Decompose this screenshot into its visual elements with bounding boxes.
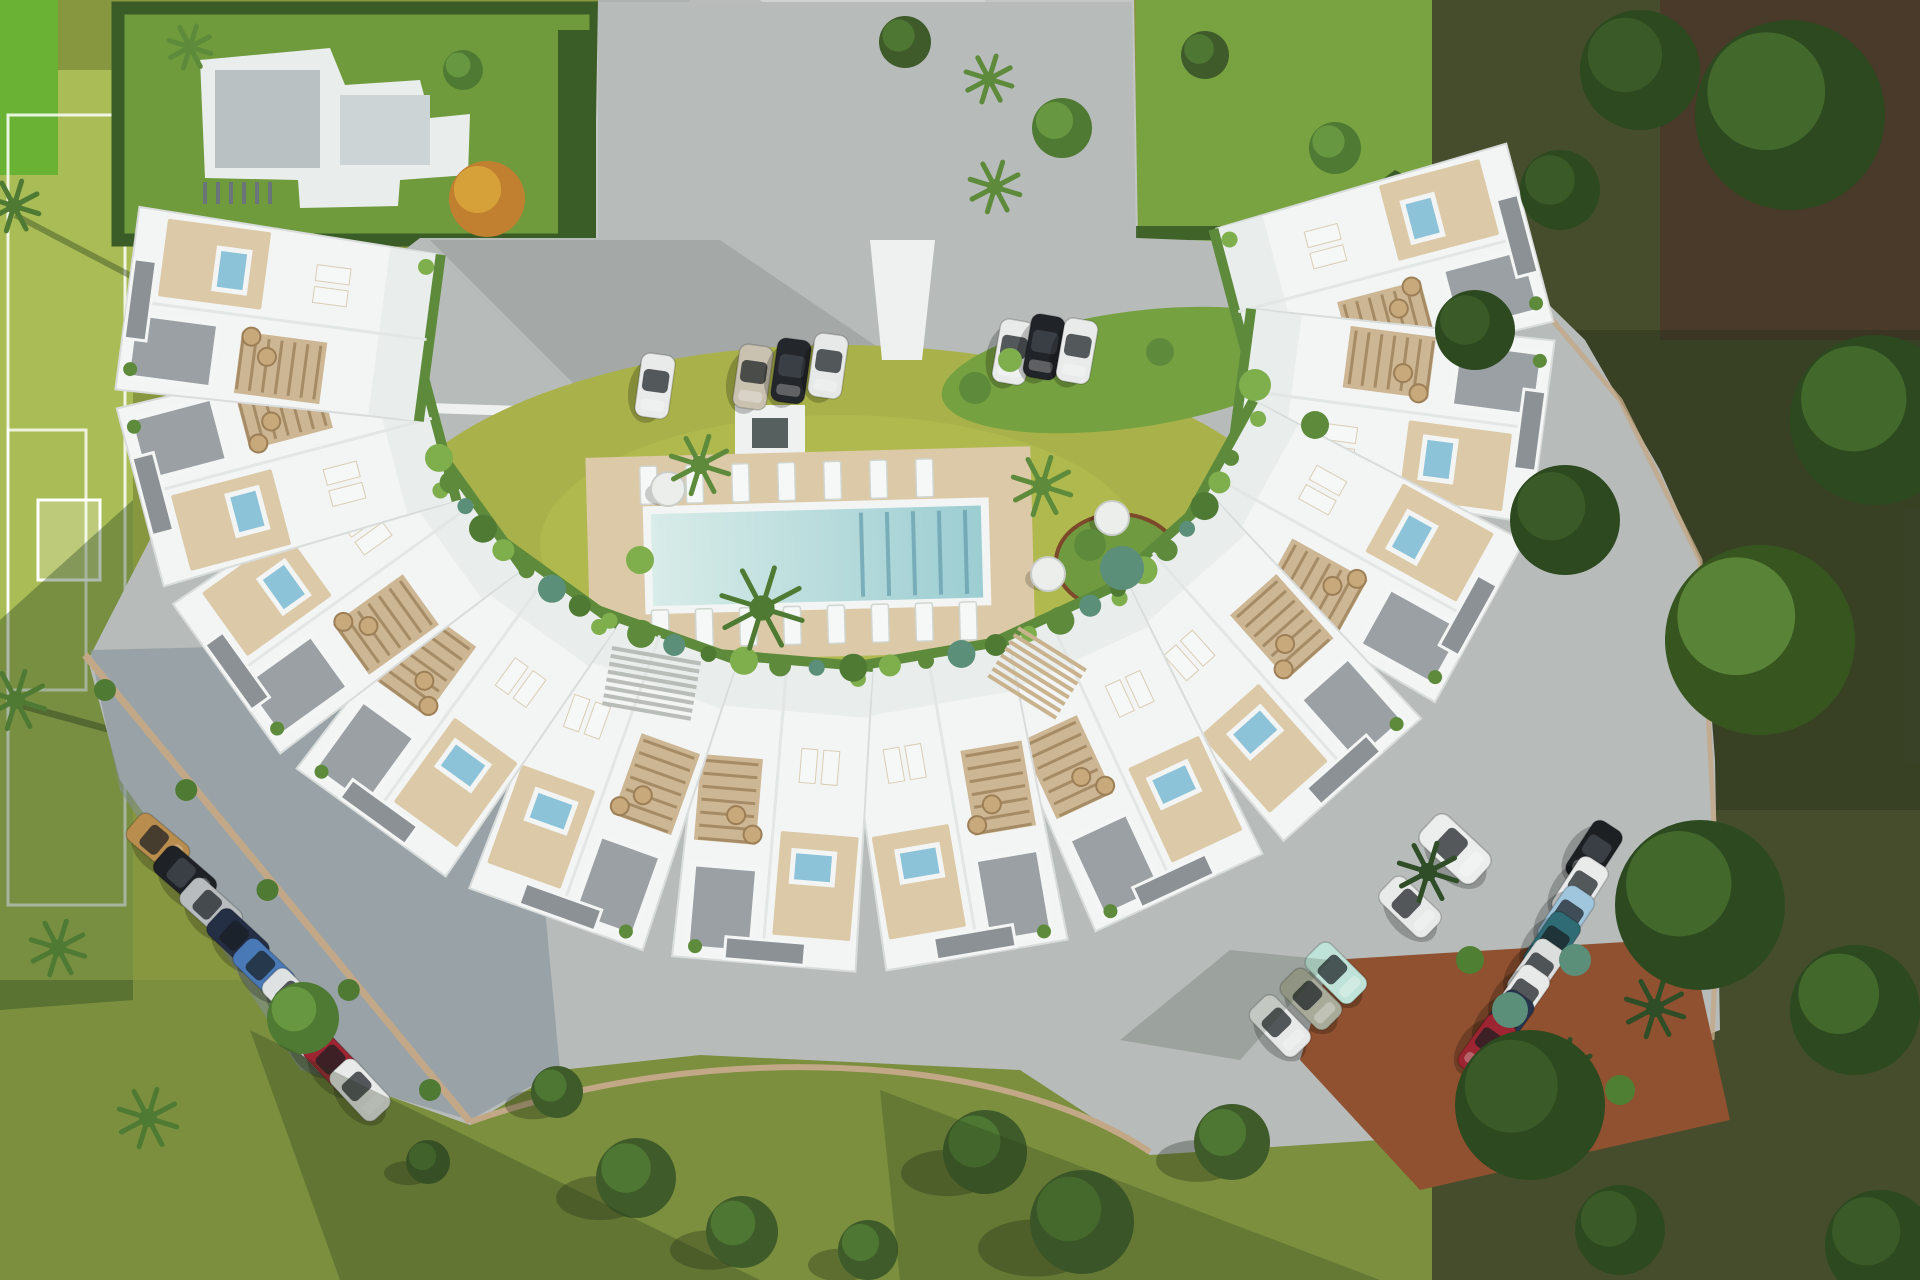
- gravel-roof-outer: [724, 937, 806, 966]
- hedge-bush: [985, 634, 1007, 656]
- bush: [1074, 529, 1106, 561]
- tree: [1455, 1030, 1605, 1180]
- tree: [1510, 465, 1620, 575]
- tree: [267, 982, 339, 1054]
- entry-gate-opening: [752, 418, 788, 448]
- sun-lounger: [799, 748, 818, 783]
- hedge-bush: [918, 653, 934, 669]
- hedge-bush: [440, 471, 462, 493]
- bush: [1559, 944, 1591, 976]
- tree: [1695, 20, 1885, 210]
- tree: [1032, 98, 1092, 158]
- bush: [1100, 546, 1144, 590]
- sun-lounger: [916, 459, 934, 497]
- bush: [998, 348, 1022, 372]
- tree: [1575, 1185, 1665, 1275]
- sun-lounger: [824, 461, 842, 499]
- roof-deck: [772, 831, 858, 941]
- villa-roof-gray: [215, 70, 320, 168]
- lane-line: [939, 511, 941, 595]
- curb-bush: [175, 779, 197, 801]
- hedge-bush: [701, 646, 717, 662]
- hedge-bush: [569, 595, 591, 617]
- car-glass: [739, 359, 768, 384]
- curb-bush: [94, 679, 116, 701]
- hedge-bush: [769, 654, 791, 676]
- round-table: [1095, 501, 1129, 535]
- bush: [1301, 411, 1329, 439]
- wicker-chair: [1408, 383, 1428, 403]
- hedge-bush: [879, 654, 901, 676]
- sun-lounger: [827, 605, 845, 643]
- tree: [1615, 820, 1785, 990]
- hedge-bush: [457, 498, 473, 514]
- hedge-bush: [839, 654, 867, 682]
- scene-canvas: [0, 0, 1920, 1280]
- hedge-bush: [1046, 607, 1074, 635]
- hedge-bush: [492, 539, 514, 561]
- tree: [1435, 290, 1515, 370]
- car-glass: [641, 368, 670, 393]
- curb-bush: [419, 1079, 441, 1101]
- bush: [626, 546, 654, 574]
- aerial-render: [0, 0, 1920, 1280]
- hedge-bush: [425, 444, 453, 472]
- tree: [1181, 31, 1229, 79]
- car-glass: [814, 348, 843, 373]
- jacuzzi: [794, 853, 832, 882]
- hedge-bush: [809, 660, 825, 676]
- jacuzzi: [1423, 440, 1453, 479]
- hedge-bush: [1223, 450, 1239, 466]
- hedge-bush: [663, 634, 685, 656]
- hedge-bush: [627, 620, 655, 648]
- lane-line: [861, 513, 863, 597]
- sun-lounger: [959, 602, 977, 640]
- wicker-chair: [241, 327, 261, 347]
- tree: [1665, 545, 1855, 735]
- wicker-chair: [257, 347, 277, 367]
- driveway-hedge-left: [558, 30, 596, 238]
- lane-line: [887, 512, 889, 596]
- bush: [1239, 369, 1271, 401]
- hedge-bush: [469, 515, 497, 543]
- bush: [1146, 338, 1174, 366]
- sun-lounger: [783, 606, 801, 644]
- round-table: [1031, 557, 1065, 591]
- bush: [1492, 992, 1528, 1028]
- wicker-chair: [743, 825, 762, 844]
- tree: [1309, 122, 1361, 174]
- bush: [959, 372, 991, 404]
- hedge-bush: [1079, 595, 1101, 617]
- bush: [1605, 1075, 1635, 1105]
- tree: [1580, 10, 1700, 130]
- sun-lounger: [778, 462, 796, 500]
- lane-line: [965, 510, 967, 594]
- hedge-bush: [947, 640, 975, 668]
- lane-line: [913, 511, 915, 595]
- sun-lounger: [732, 464, 750, 502]
- car-glass: [1063, 333, 1092, 359]
- jacuzzi: [217, 251, 247, 290]
- sun-lounger: [915, 603, 933, 641]
- hedge-bush: [1179, 521, 1195, 537]
- hedge-bush: [1191, 492, 1219, 520]
- hedge-bush: [1208, 471, 1230, 493]
- villa-roof-gray2: [340, 95, 430, 165]
- hedge-bush: [538, 575, 566, 603]
- wicker-chair: [726, 805, 745, 824]
- wicker-chair: [1393, 363, 1413, 383]
- swimming-pool: [651, 506, 983, 607]
- sun-lounger: [870, 460, 888, 498]
- sun-lounger: [871, 604, 889, 642]
- curb-bush: [257, 879, 279, 901]
- bush: [1456, 946, 1484, 974]
- tree: [1790, 945, 1920, 1075]
- hedge-bush: [730, 647, 758, 675]
- sun-lounger: [821, 750, 840, 785]
- tree: [1520, 150, 1600, 230]
- curb-bush: [338, 979, 360, 1001]
- hedge-bush: [1156, 539, 1178, 561]
- tree: [443, 50, 483, 90]
- tree: [879, 16, 931, 68]
- tree: [449, 161, 525, 237]
- hedge-bush: [602, 613, 618, 629]
- hedge-bush: [519, 562, 535, 578]
